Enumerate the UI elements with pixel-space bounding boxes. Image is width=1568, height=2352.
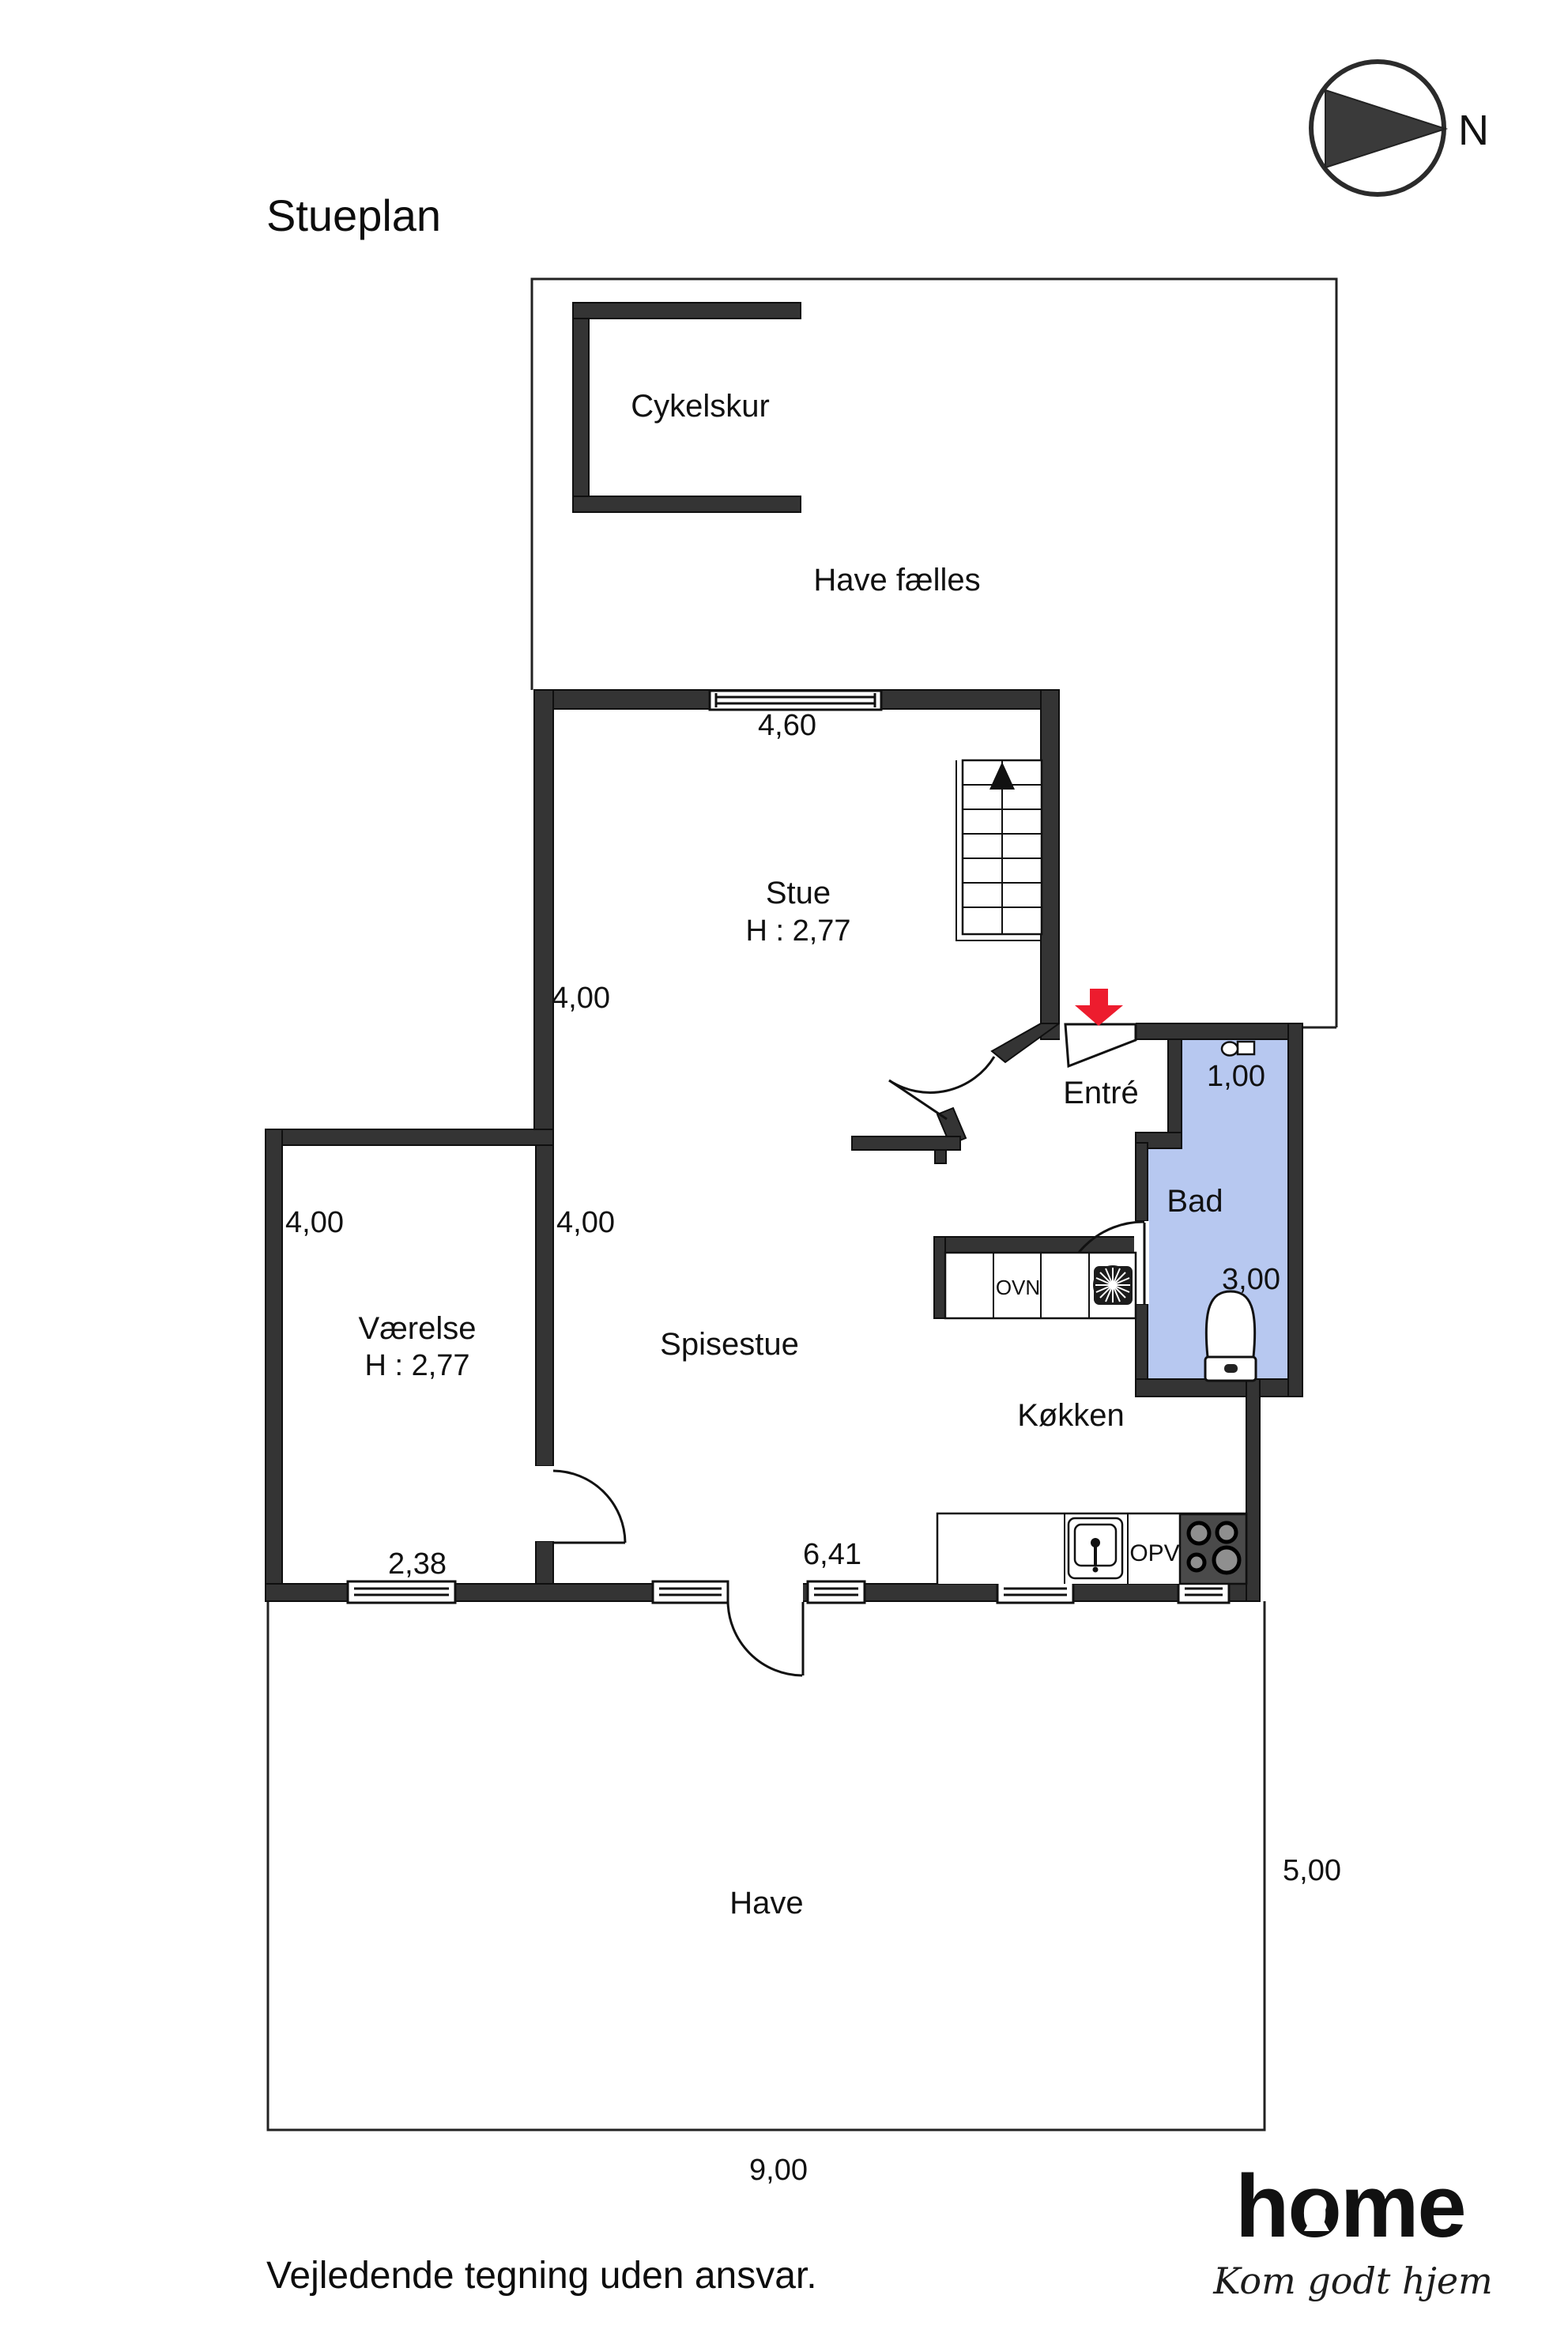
windows	[348, 691, 1229, 1603]
window-spisestue-left	[653, 1581, 728, 1603]
kitchen-counter-lower: OPV	[937, 1513, 1246, 1584]
bad-left-wall-lower-b	[1136, 1304, 1148, 1379]
dim-bad-top: 1,00	[1207, 1060, 1265, 1093]
brand-logo: home Kom godt hjem	[1212, 2157, 1493, 2302]
room-labels: Cykelskur Have fælles Stue H : 2,77 Entr…	[359, 389, 1223, 1920]
vaerelse-divider-wall	[536, 1145, 553, 1466]
washbasin-icon	[1222, 1042, 1254, 1056]
vaerelse-label: Værelse	[359, 1311, 477, 1346]
dishwasher-label: OPV	[1129, 1540, 1179, 1566]
page-title: Stueplan	[266, 190, 441, 240]
dim-spisestue-bottom: 6,41	[803, 1538, 861, 1571]
window-vaerelse	[348, 1581, 455, 1603]
dim-have-right: 5,00	[1283, 1854, 1341, 1887]
sink-icon	[1069, 1518, 1122, 1578]
cykelskur-label: Cykelskur	[631, 389, 770, 424]
compass: N	[1311, 62, 1489, 194]
dim-vaerelse-bottom: 2,38	[388, 1547, 447, 1581]
toilet-icon	[1205, 1291, 1256, 1381]
bad-right-wall	[1288, 1023, 1302, 1396]
spisestue-divider-stub	[852, 1136, 960, 1150]
corner-wall-stub-a	[992, 1023, 1059, 1062]
patio-door	[728, 1601, 803, 1675]
brand-tagline: Kom godt hjem	[1212, 2260, 1493, 2302]
spisestue-divider-foot	[935, 1150, 946, 1163]
dim-bad-right: 3,00	[1222, 1263, 1280, 1296]
cykelskur-bottom-wall	[573, 496, 801, 512]
cykelskur-top-wall	[573, 303, 801, 318]
dim-spisestue-left: 4,00	[556, 1206, 615, 1239]
dim-stue-top: 4,60	[758, 709, 816, 742]
oven-label: OVN	[996, 1276, 1040, 1299]
floorplan-drawing: Stueplan N	[0, 0, 1568, 2352]
stove-icon	[1180, 1514, 1246, 1584]
kitchen-counter-left-stub	[934, 1237, 945, 1318]
vaerelse-door-opening	[534, 1466, 555, 1541]
vaerelse-door	[553, 1471, 625, 1543]
entre-label: Entré	[1063, 1076, 1139, 1110]
bad-left-wall-upper	[1168, 1039, 1182, 1143]
kitchen-counter-top-wall	[934, 1237, 1148, 1253]
window-spisestue-right	[808, 1581, 865, 1603]
house-right-wall-lower	[1246, 1379, 1260, 1601]
dim-stue-left: 4,00	[552, 982, 610, 1015]
floorplan-page: Stueplan N	[0, 0, 1568, 2352]
stue-right-wall	[1041, 690, 1059, 1030]
dim-vaerelse-left: 4,00	[285, 1206, 344, 1239]
window-koekken-counter	[997, 1581, 1073, 1603]
dim-have-bottom: 9,00	[749, 2154, 808, 2187]
vaerelse-top-wall	[266, 1129, 553, 1145]
disclaimer-text: Vejledende tegning uden ansvar.	[266, 2255, 817, 2297]
walls	[266, 303, 1302, 1601]
north-label: N	[1458, 107, 1489, 154]
have-faelles-label: Have fælles	[813, 563, 980, 597]
kitchen-counter-upper: OVN	[945, 1253, 1136, 1318]
cykelskur-left-wall	[573, 303, 589, 512]
house-left-wall	[534, 690, 553, 1145]
corner-door	[889, 1057, 994, 1119]
bad-left-wall-lower-a	[1136, 1143, 1148, 1221]
have-label: Have	[729, 1886, 803, 1920]
entrance-arrow-icon	[1075, 989, 1123, 1026]
stue-height-label: H : 2,77	[745, 914, 850, 948]
brand-wordmark: home	[1235, 2157, 1465, 2256]
bad-label: Bad	[1167, 1184, 1223, 1219]
front-door-leaf	[1065, 1024, 1136, 1066]
extractor-fan-icon	[1093, 1265, 1133, 1305]
spisestue-label: Spisestue	[660, 1327, 799, 1362]
have-garden-border-line	[268, 1601, 1265, 2130]
vaerelse-left-wall	[266, 1129, 282, 1601]
koekken-label: Køkken	[1017, 1398, 1125, 1433]
stairs	[956, 760, 1042, 940]
stue-label: Stue	[766, 876, 831, 910]
vaerelse-height-label: H : 2,77	[364, 1349, 469, 1382]
patio-door-opening	[728, 1582, 803, 1603]
window-stue-top	[710, 691, 881, 710]
